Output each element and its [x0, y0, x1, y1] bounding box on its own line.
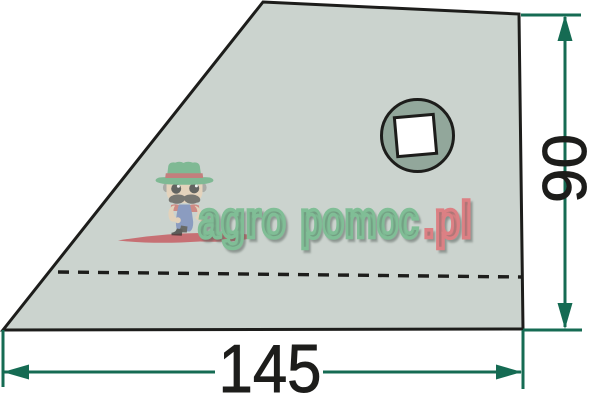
svg-text:.pl: .pl: [423, 192, 472, 250]
svg-text:90: 90: [531, 134, 600, 203]
svg-text:pomoc: pomoc: [300, 192, 419, 250]
svg-text:agro: agro: [198, 192, 286, 250]
svg-text:145: 145: [219, 331, 322, 406]
